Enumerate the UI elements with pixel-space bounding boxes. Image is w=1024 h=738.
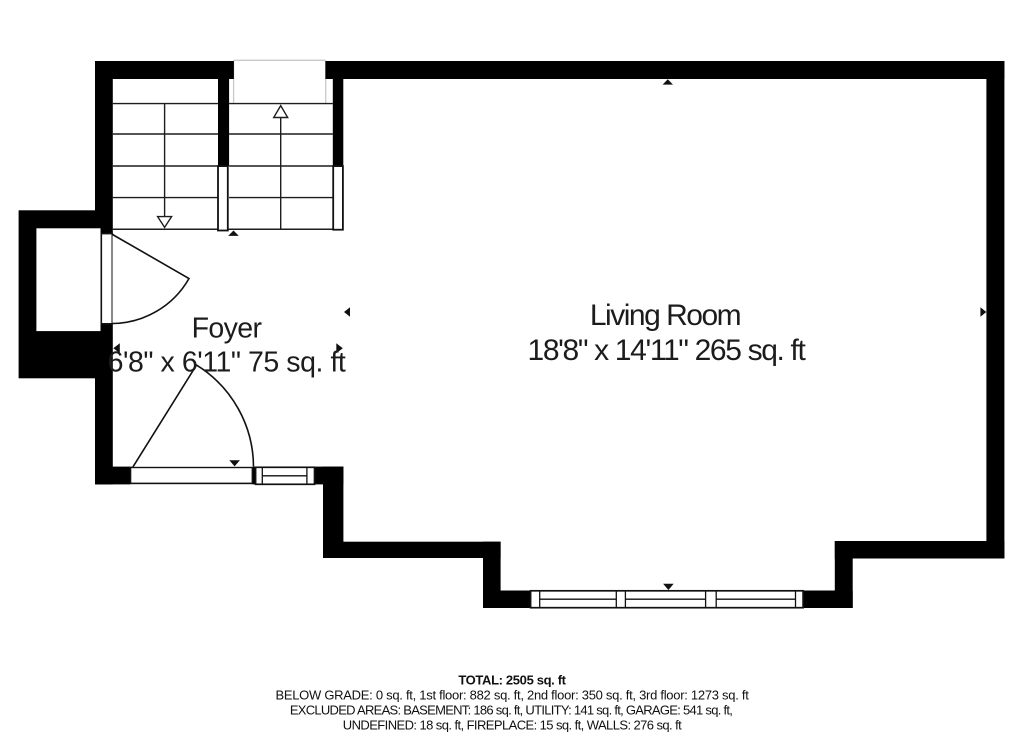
- svg-text:EXCLUDED AREAS: BASEMENT: 186: EXCLUDED AREAS: BASEMENT: 186 sq. ft, UT…: [290, 703, 732, 718]
- svg-text:TOTAL: 2505 sq. ft: TOTAL: 2505 sq. ft: [458, 673, 566, 688]
- svg-text:BELOW GRADE: 0 sq. ft, 1st flo: BELOW GRADE: 0 sq. ft, 1st floor: 882 sq…: [275, 688, 749, 703]
- svg-text:6'8" x 6'11" 75 sq. ft: 6'8" x 6'11" 75 sq. ft: [108, 346, 346, 378]
- svg-text:Living Room: Living Room: [590, 299, 741, 332]
- svg-text:18'8" x 14'11" 265 sq. ft: 18'8" x 14'11" 265 sq. ft: [528, 334, 807, 367]
- svg-text:Foyer: Foyer: [192, 312, 263, 344]
- svg-text:UNDEFINED: 18 sq. ft, FIREPLAC: UNDEFINED: 18 sq. ft, FIREPLACE: 15 sq. …: [343, 718, 682, 733]
